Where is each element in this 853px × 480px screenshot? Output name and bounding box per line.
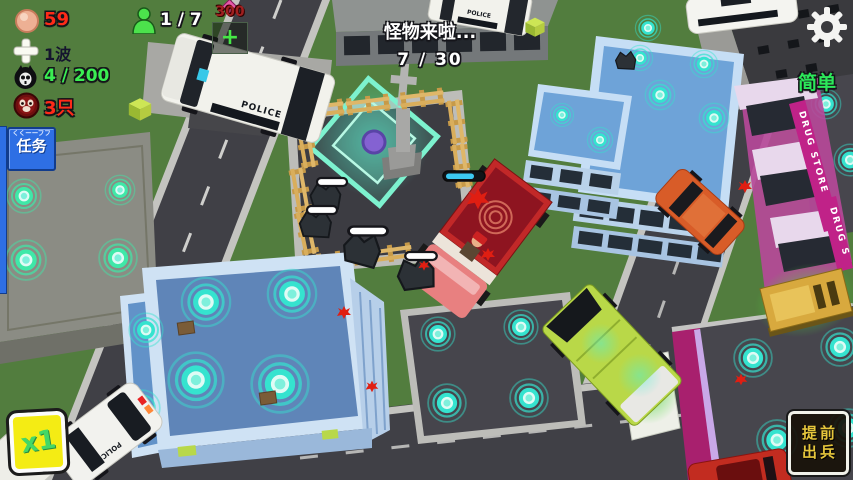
game-screen: DRUG STORE DRUG S POLICE POLICE	[0, 0, 853, 480]
wave-number: 1波	[44, 41, 71, 65]
recruit-cost: 300	[210, 4, 250, 20]
mission-label: 任务	[9, 138, 54, 154]
kill-count: 4 / 200	[44, 66, 109, 86]
wave-banner-count: 7 / 30	[345, 50, 515, 70]
crate	[259, 391, 277, 405]
cross-icon	[12, 37, 40, 65]
spawn-portal	[421, 317, 455, 351]
unit-count: 1 / 7	[160, 10, 202, 30]
settings-button[interactable]	[806, 6, 848, 48]
spawn-portal	[550, 103, 573, 126]
speed-button[interactable]: x1	[8, 411, 67, 474]
spawn-portal	[129, 313, 163, 347]
spawn-portal	[6, 240, 46, 280]
wave-banner: 怪物来啦... 7 / 30	[345, 18, 515, 70]
spawn-portal	[99, 239, 137, 277]
speed-label: x1	[18, 424, 57, 459]
spawn-portal	[105, 175, 134, 204]
mission-panel[interactable]: くくーーフフ 任务	[7, 127, 56, 171]
peach-orb-icon	[14, 8, 40, 34]
spawn-portal	[504, 310, 538, 344]
spawn-portal	[587, 127, 612, 152]
spawn-portal	[252, 356, 309, 413]
panda-badge-icon	[13, 92, 40, 119]
plus-icon: +	[221, 27, 239, 49]
spawn-portal	[182, 278, 230, 326]
spawn-portal	[690, 50, 717, 77]
deploy-line2: 出兵	[802, 443, 838, 462]
person-icon	[131, 6, 157, 34]
game-world: DRUG STORE DRUG S POLICE POLICE	[0, 0, 853, 480]
recruit-button[interactable]: +	[212, 22, 248, 54]
deploy-early-button[interactable]: 提前 出兵	[788, 411, 849, 475]
skull-cat-icon	[12, 64, 39, 91]
spawn-portal	[699, 103, 728, 132]
boss-count: 3只	[44, 94, 75, 120]
mission-bar	[0, 126, 7, 294]
difficulty-badge: 简单	[798, 68, 836, 95]
spawn-portal	[645, 80, 674, 109]
currency-value: 59	[44, 9, 69, 30]
spawn-portal	[7, 179, 41, 213]
ally-health-bar	[443, 171, 485, 181]
wave-banner-title: 怪物来啦...	[345, 18, 515, 44]
spawn-portal	[169, 353, 224, 408]
spawn-portal	[635, 15, 660, 40]
deploy-line1: 提前	[802, 424, 838, 443]
gear-icon	[806, 6, 848, 48]
building-bottom-left-blue	[120, 252, 390, 468]
spawn-portal	[734, 339, 772, 377]
spawn-portal	[510, 379, 548, 417]
spawn-portal	[428, 384, 466, 422]
crate	[177, 321, 195, 335]
spawn-portal	[268, 270, 316, 318]
